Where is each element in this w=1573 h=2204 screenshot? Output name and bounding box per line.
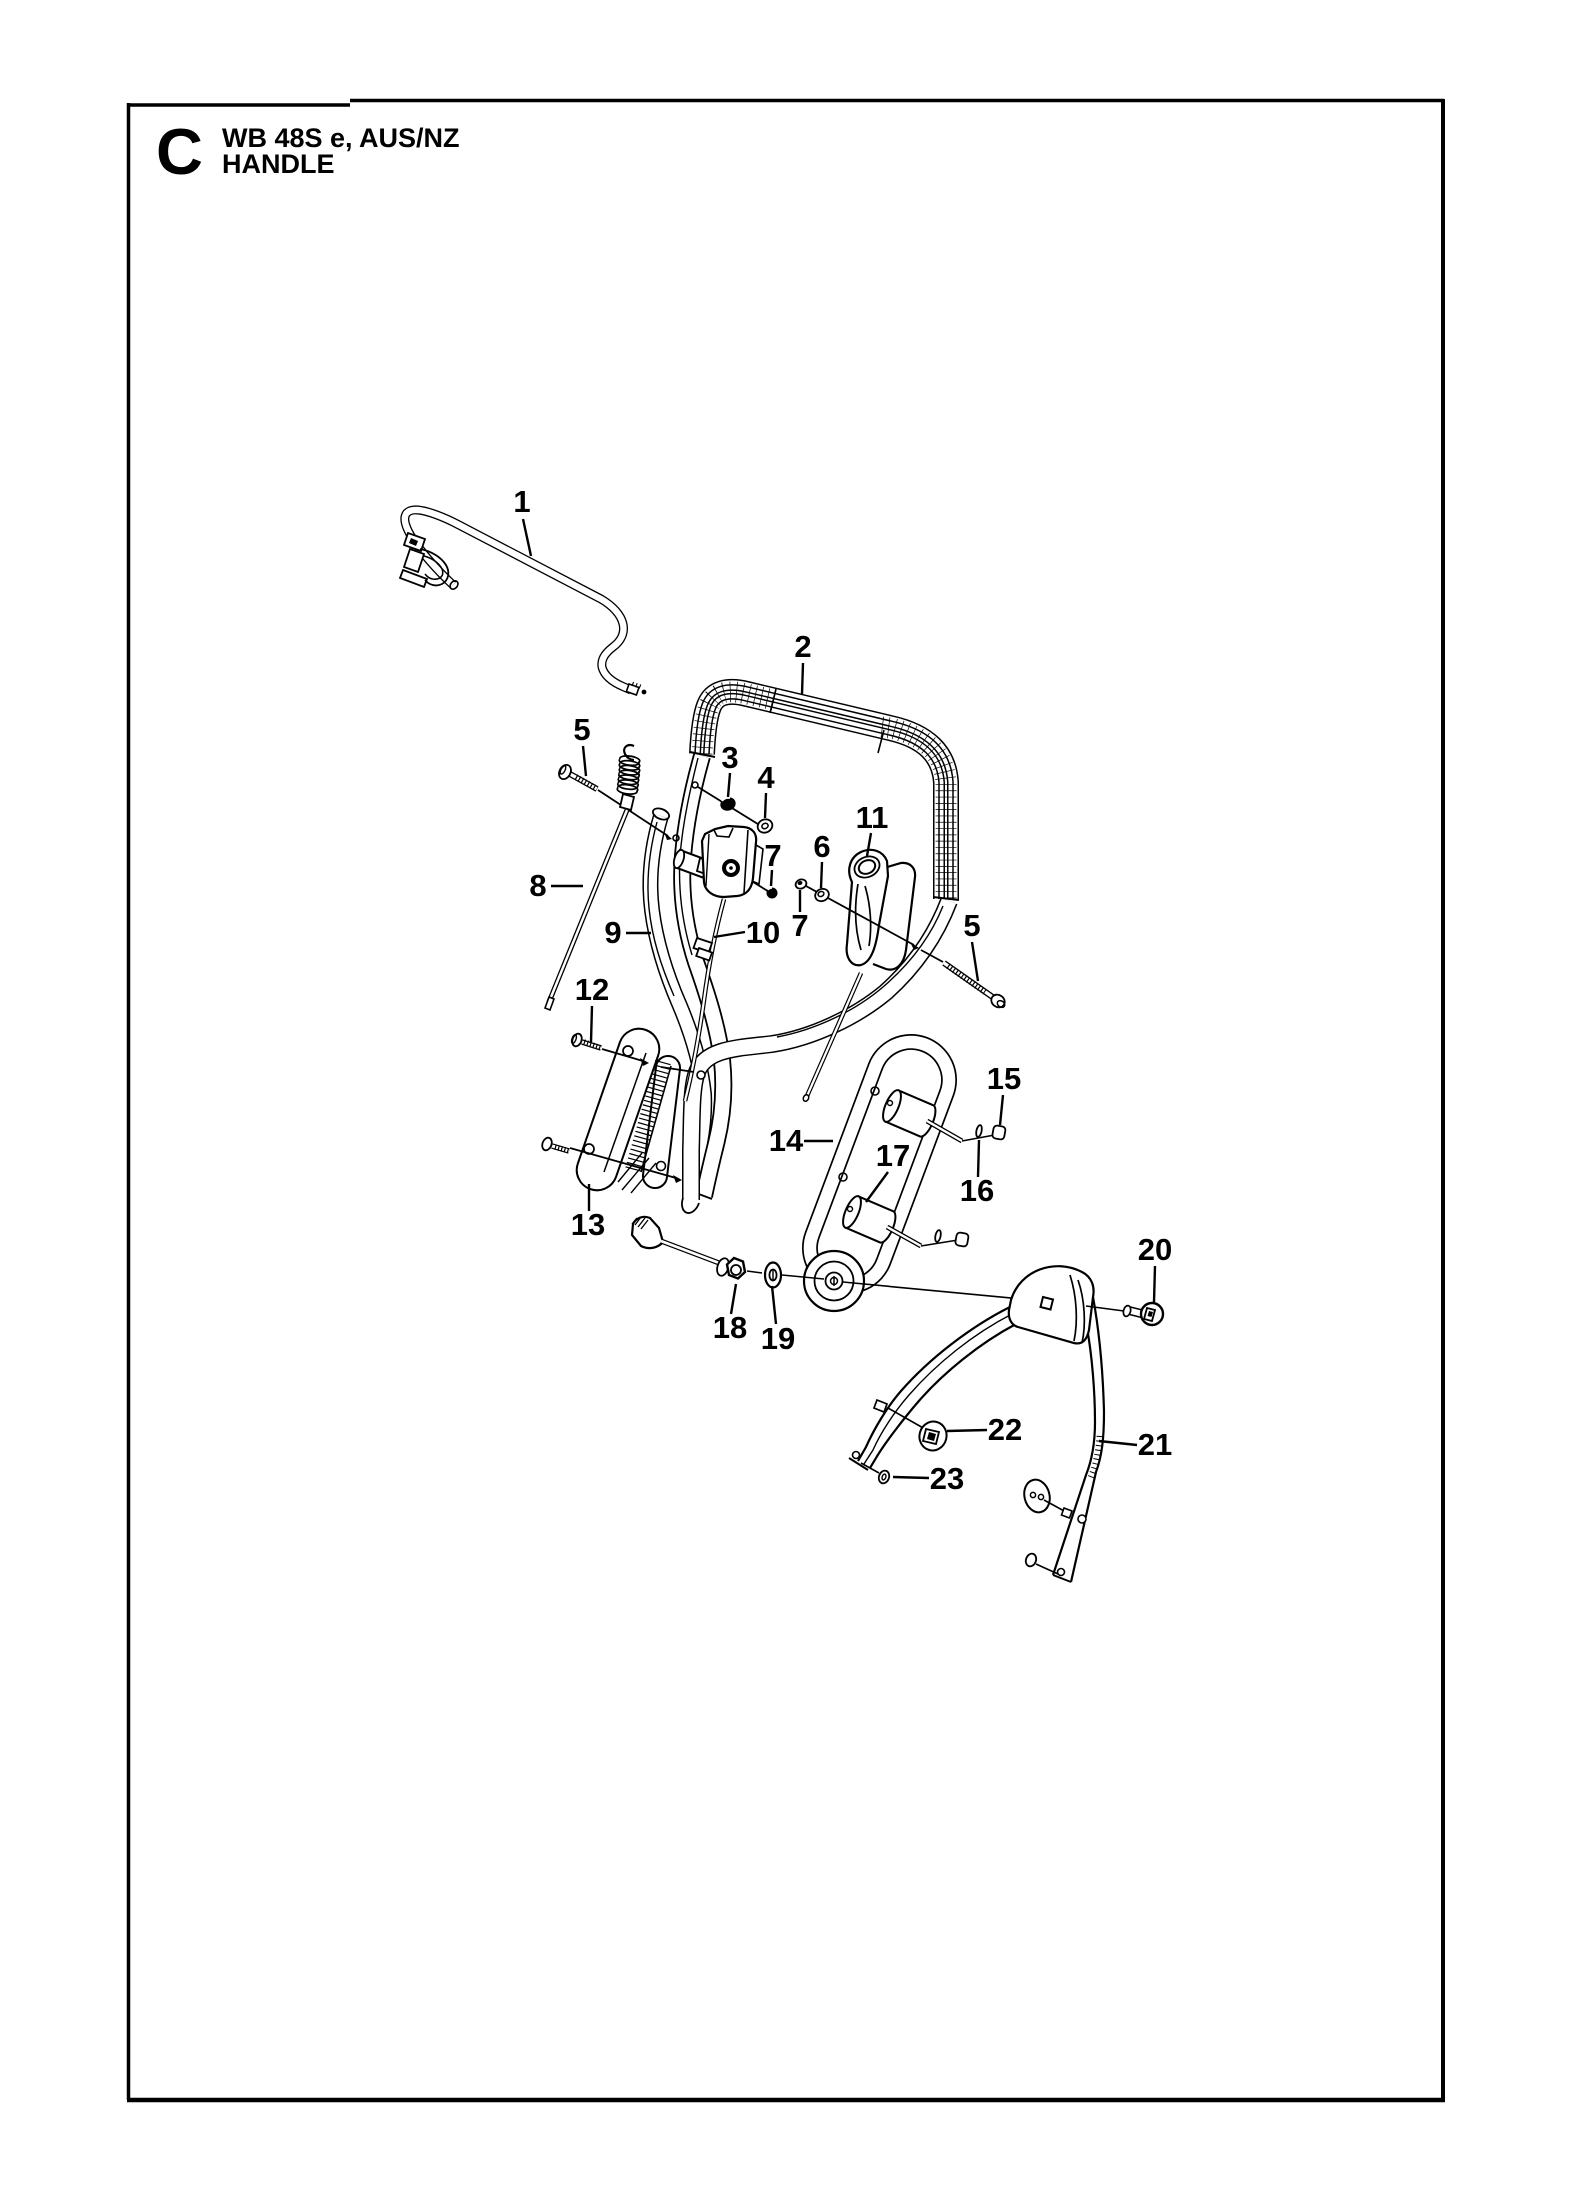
svg-text:HANDLE: HANDLE xyxy=(222,149,335,179)
svg-text:22: 22 xyxy=(988,1412,1022,1447)
svg-text:9: 9 xyxy=(604,915,621,950)
svg-text:18: 18 xyxy=(713,1310,747,1345)
svg-text:5: 5 xyxy=(573,712,590,747)
svg-text:13: 13 xyxy=(571,1207,605,1242)
svg-text:C: C xyxy=(156,115,203,188)
svg-text:1: 1 xyxy=(513,484,530,519)
svg-text:4: 4 xyxy=(757,760,775,795)
svg-text:7: 7 xyxy=(764,838,781,873)
svg-text:15: 15 xyxy=(987,1061,1021,1096)
svg-text:5: 5 xyxy=(963,908,980,943)
svg-text:14: 14 xyxy=(769,1123,804,1158)
svg-text:2: 2 xyxy=(794,629,811,664)
svg-text:6: 6 xyxy=(813,829,830,864)
svg-text:23: 23 xyxy=(930,1461,964,1496)
svg-text:16: 16 xyxy=(960,1173,994,1208)
svg-text:3: 3 xyxy=(721,740,738,775)
svg-text:19: 19 xyxy=(761,1321,795,1356)
svg-text:7: 7 xyxy=(791,908,808,943)
svg-text:21: 21 xyxy=(1138,1427,1172,1462)
svg-text:12: 12 xyxy=(575,972,609,1007)
svg-text:11: 11 xyxy=(856,800,889,835)
svg-text:10: 10 xyxy=(746,915,780,950)
svg-text:8: 8 xyxy=(529,868,546,903)
svg-text:20: 20 xyxy=(1138,1232,1172,1267)
svg-text:17: 17 xyxy=(876,1138,910,1173)
